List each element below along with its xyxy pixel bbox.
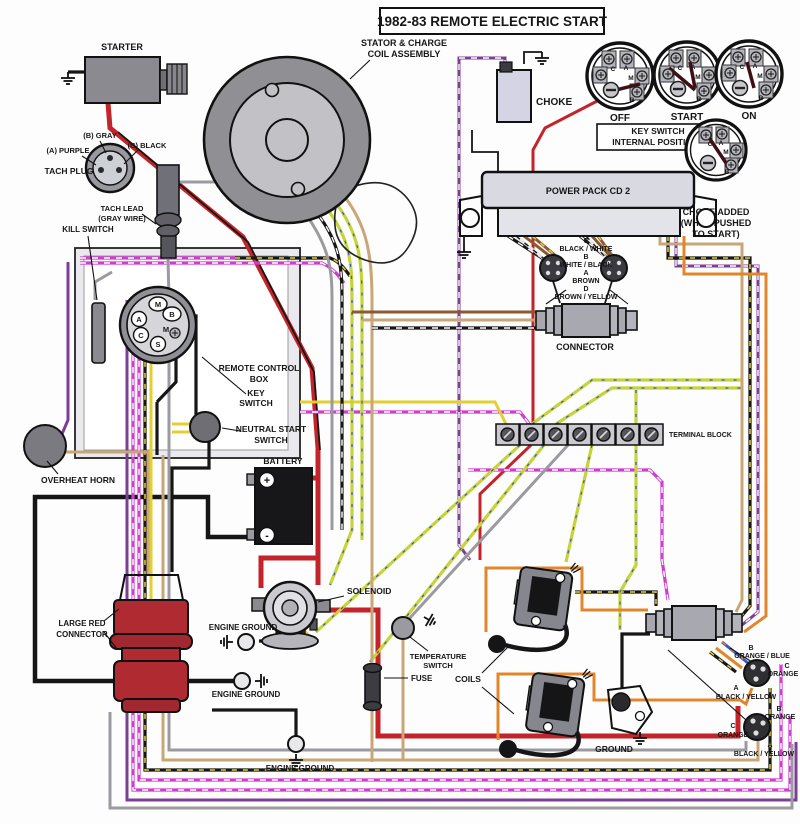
key-switch-label: SWITCH (239, 398, 273, 408)
screw-icon (596, 70, 606, 80)
key-position-label: OFF (610, 113, 630, 124)
battery: + - BATTERY (247, 456, 312, 544)
temp-label: TEMPERATURE (410, 652, 467, 661)
horn-label: OVERHEAT HORN (41, 475, 115, 485)
remote-key-switch: M A B C M S (120, 287, 196, 363)
screw-icon (671, 82, 686, 97)
screw-icon (731, 145, 741, 155)
spark-plug-cap (488, 635, 506, 653)
stator-label: STATOR & CHARGE (361, 38, 447, 48)
remote-box-label: BOX (250, 374, 269, 384)
terminal-letter: M (155, 300, 161, 309)
screw-icon (704, 70, 714, 80)
terminal-letter: B (759, 95, 764, 102)
screw-icon (663, 69, 673, 79)
terminal-letter: A (624, 65, 629, 72)
terminal-letter: C (611, 66, 616, 73)
engine-ground-label: ENGINE GROUND (212, 690, 281, 699)
terminal-letter: S (155, 340, 160, 349)
key-switch-label: KEY (247, 388, 265, 398)
wire-color-label: WHITE / BLACK (560, 262, 613, 269)
pin-label: D (583, 286, 588, 293)
battery-plus: + (264, 475, 270, 487)
mount-hole (461, 209, 479, 227)
wire-color-label: BLACK / YELLOW (716, 694, 777, 701)
wire-color-label: BLACK / YELLOW (734, 751, 795, 758)
screw-icon (733, 81, 748, 96)
terminal-letter: C (708, 141, 713, 148)
screw-icon (761, 85, 771, 95)
terminal-letter: B (630, 97, 635, 104)
terminal-letter: M (757, 73, 762, 80)
engine-ground-label: ENGINE GROUND (266, 764, 335, 773)
wire-color-label: BROWN / YELLOW (555, 294, 618, 301)
screw-icon (525, 428, 538, 441)
terminal-letter: M (628, 75, 633, 82)
tach-b-label: (B) GRAY (83, 131, 116, 140)
screw-icon (751, 52, 761, 62)
screw-icon (501, 428, 514, 441)
choke-label: CHOKE (536, 97, 572, 108)
screw-icon (766, 69, 776, 79)
terminal-letter: M (695, 74, 700, 81)
starter-label: STARTER (101, 42, 143, 52)
pin-label: B (748, 645, 753, 652)
terminal-letter: A (691, 64, 696, 71)
pin-label: B (583, 254, 588, 261)
fuse-label: FUSE (411, 674, 433, 683)
tach-pin-a (98, 167, 104, 173)
screw-icon (604, 83, 619, 98)
wiring-diagram: 1982-83 REMOTE ELECTRIC START STARTER ST… (0, 0, 800, 824)
pin-label: A (583, 270, 588, 277)
screw-icon (645, 428, 658, 441)
terminal-letter: A (719, 140, 724, 147)
screw-icon (573, 428, 586, 441)
terminal-letter: C (138, 331, 144, 340)
screw-icon (671, 53, 681, 63)
terminal-letter: B (169, 310, 175, 319)
large-red-label: CONNECTOR (56, 630, 108, 639)
wire-color-label: ORANGE (765, 714, 796, 721)
screw-icon (733, 52, 743, 62)
screw-icon (604, 54, 614, 64)
battery-label: BATTERY (263, 456, 303, 466)
screw-icon (622, 54, 632, 64)
tach-a-label: (A) PURPLE (47, 146, 90, 155)
battery-minus: - (265, 530, 269, 542)
temp-label: SWITCH (423, 661, 453, 670)
screw-icon (632, 87, 642, 97)
key-position-label: START (671, 112, 704, 123)
solenoid-label: SOLENOID (347, 586, 391, 596)
screw-icon (621, 428, 634, 441)
tach-plug-label: TACH PLUG (45, 166, 94, 176)
terminal-letter: B (697, 96, 702, 103)
flywheel-bolt (266, 84, 279, 97)
wire-color-label: ORANGE / BLUE (734, 653, 790, 660)
tach-c-label: (C) BLACK (128, 141, 167, 150)
screw-icon (701, 156, 716, 171)
pin-label: A (733, 685, 738, 692)
title-box: 1982-83 REMOTE ELECTRIC START (377, 8, 608, 34)
label: KEY SWITCH (631, 126, 684, 136)
screw-icon (170, 328, 180, 338)
tach-lead-label: TACH LEAD (101, 204, 144, 213)
tach-pin-b (107, 155, 113, 161)
screw-icon (699, 86, 709, 96)
pin-label: B (776, 706, 781, 713)
remote-box-label: REMOTE CONTROL (219, 363, 300, 373)
screw-icon (637, 71, 647, 81)
large-red-label: LARGE RED (58, 619, 105, 628)
spark-plug-cap (499, 740, 517, 758)
wire-color-label: ORANGE (768, 671, 799, 678)
neutral-label: NEUTRAL START (236, 424, 307, 434)
terminal-letter: A (753, 63, 758, 70)
pin-label: A (767, 742, 772, 749)
pin-label: C (784, 663, 789, 670)
pin-label: C (583, 238, 588, 245)
power-pack-label: POWER PACK CD 2 (546, 186, 630, 196)
tach-pin-c (116, 167, 122, 173)
screw-icon (717, 129, 727, 139)
connector-label: CONNECTOR (556, 342, 614, 352)
terminal-block-label: TERMINAL BLOCK (669, 432, 732, 439)
pin-label: C (730, 723, 735, 730)
flywheel-bolt (292, 183, 305, 196)
terminal-letter: B (725, 169, 730, 176)
screw-icon (725, 68, 735, 78)
wire-color-label: BLACK / WHITE (560, 246, 613, 253)
ground-label: GROUND (595, 744, 633, 754)
terminal-letter: M (723, 149, 728, 156)
screw-icon (597, 428, 610, 441)
screw-icon (701, 130, 711, 140)
screw-icon (689, 53, 699, 63)
stator-label: COIL ASSEMBLY (368, 49, 441, 59)
tach-lead-label: (GRAY WIRE) (98, 214, 146, 223)
neutral-label: SWITCH (254, 435, 288, 445)
wire-color-label: ORANGE (718, 732, 749, 739)
terminal-letter: M (163, 325, 169, 334)
kill-switch-label: KILL SWITCH (62, 225, 114, 234)
terminal-letter: C (678, 65, 683, 72)
screw-icon (549, 428, 562, 441)
wire-color-label: BROWN (572, 278, 599, 285)
coils-label: COILS (455, 674, 481, 684)
mount-hole (697, 209, 715, 227)
page-title: 1982-83 REMOTE ELECTRIC START (377, 14, 608, 29)
key-position-label: ON (742, 111, 757, 122)
terminal-letter: C (740, 64, 745, 71)
terminal-letter: A (136, 315, 142, 324)
engine-ground-label: ENGINE GROUND (209, 623, 278, 632)
